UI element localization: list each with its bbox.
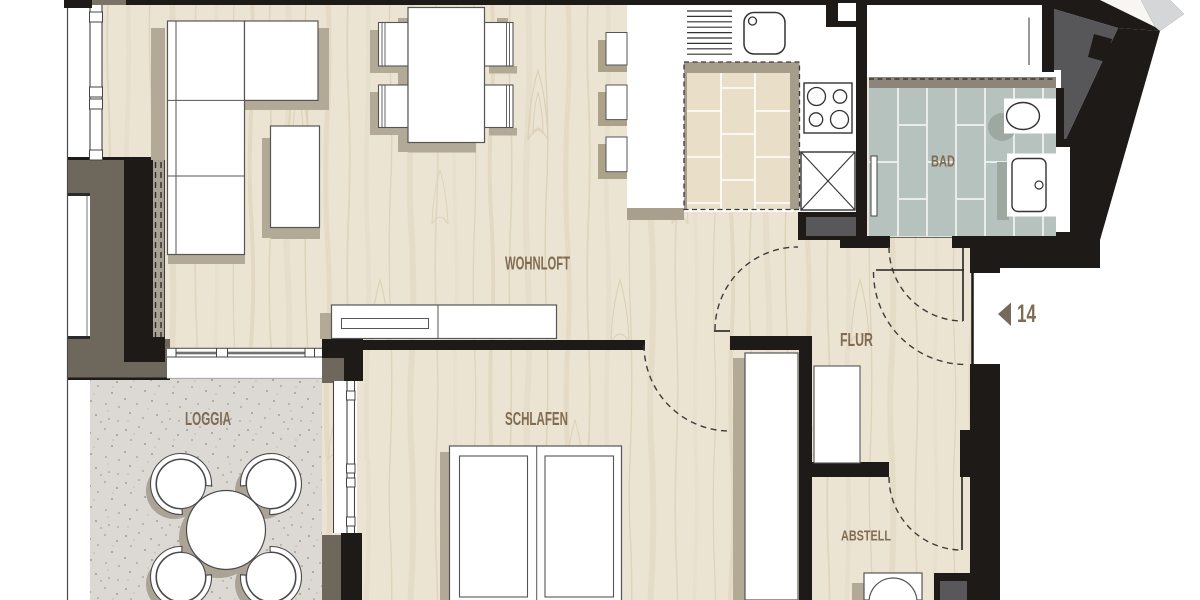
svg-text:WOHNLOFT: WOHNLOFT (505, 254, 570, 274)
svg-text:BAD: BAD (931, 154, 955, 171)
svg-text:SCHLAFEN: SCHLAFEN (505, 409, 568, 429)
svg-text:LOGGIA: LOGGIA (185, 409, 231, 429)
svg-text:FLUR: FLUR (840, 330, 873, 350)
svg-text:14: 14 (1017, 300, 1036, 328)
svg-text:ABSTELL: ABSTELL (841, 529, 891, 545)
